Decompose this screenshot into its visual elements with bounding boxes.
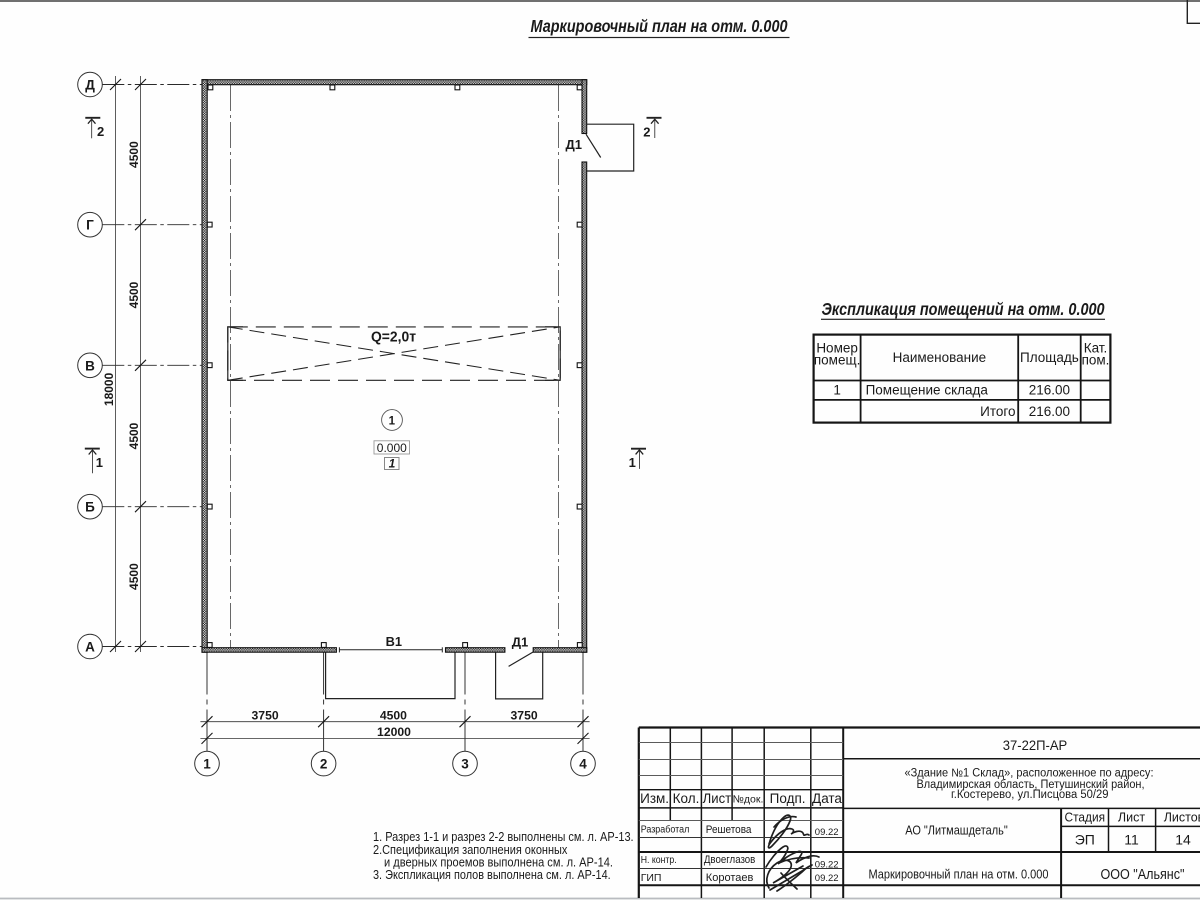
svg-text:Лист: Лист — [703, 791, 732, 806]
svg-text:3750: 3750 — [252, 708, 279, 722]
svg-text:14: 14 — [1175, 831, 1191, 847]
svg-text:4500: 4500 — [127, 422, 141, 449]
svg-text:Кол.: Кол. — [673, 791, 700, 806]
svg-text:Итого: Итого — [980, 404, 1015, 419]
svg-text:Д: Д — [85, 78, 95, 93]
svg-text:Подп.: Подп. — [770, 791, 806, 806]
svg-text:Маркировочный план на отм. 0.0: Маркировочный план на отм. 0.000 — [531, 16, 788, 36]
svg-text:ООО "Альянс": ООО "Альянс" — [1101, 866, 1185, 883]
svg-text:г.Костерево, ул.Писцова 50/29: г.Костерево, ул.Писцова 50/29 — [951, 789, 1109, 801]
svg-text:АО "Литмашдеталь": АО "Литмашдеталь" — [905, 824, 1008, 838]
svg-text:Д1: Д1 — [512, 634, 529, 649]
svg-text:09.22: 09.22 — [815, 827, 839, 838]
svg-text:4500: 4500 — [127, 281, 141, 308]
svg-text:3. Экспликация полов выполнена: 3. Экспликация полов выполнена см. л. АР… — [373, 867, 611, 882]
svg-text:4: 4 — [579, 757, 587, 772]
svg-text:3750: 3750 — [511, 708, 538, 722]
svg-text:А: А — [85, 640, 95, 655]
svg-text:1: 1 — [203, 757, 211, 772]
svg-text:Наименование: Наименование — [893, 350, 987, 365]
svg-text:4500: 4500 — [127, 563, 141, 590]
svg-text:4500: 4500 — [127, 141, 141, 168]
svg-text:№док.: №док. — [733, 794, 764, 806]
svg-text:Помещение склада: Помещение склада — [866, 383, 989, 398]
svg-text:3: 3 — [461, 757, 469, 772]
svg-text:«Здание №1 Склад», расположенн: «Здание №1 Склад», расположенное по адре… — [905, 767, 1154, 779]
svg-text:09.22: 09.22 — [815, 873, 839, 884]
svg-text:В1: В1 — [386, 634, 402, 649]
svg-text:Дата: Дата — [812, 791, 842, 806]
svg-text:Решетова: Решетова — [706, 824, 752, 836]
svg-text:37-22П-АР: 37-22П-АР — [1003, 738, 1068, 753]
svg-text:Стадия: Стадия — [1065, 811, 1106, 825]
svg-text:2: 2 — [97, 124, 104, 139]
svg-text:2: 2 — [643, 125, 650, 140]
svg-text:Изм.: Изм. — [640, 791, 669, 806]
svg-text:пом.: пом. — [1082, 352, 1110, 367]
svg-text:Q=2,0т: Q=2,0т — [371, 330, 416, 346]
svg-text:Лист: Лист — [1118, 811, 1145, 825]
svg-text:Г: Г — [86, 218, 94, 233]
svg-text:Н. контр.: Н. контр. — [641, 855, 677, 866]
svg-text:Разработал: Разработал — [641, 824, 690, 836]
svg-text:11: 11 — [1124, 831, 1139, 847]
svg-text:216.00: 216.00 — [1029, 383, 1070, 398]
svg-text:1: 1 — [629, 455, 636, 470]
svg-text:1: 1 — [389, 456, 396, 470]
svg-text:2: 2 — [320, 757, 328, 772]
svg-text:0.000: 0.000 — [377, 441, 407, 455]
svg-text:Коротаев: Коротаев — [706, 872, 754, 884]
svg-text:12000: 12000 — [377, 725, 411, 739]
svg-text:1: 1 — [96, 455, 103, 470]
svg-text:помещ.: помещ. — [814, 352, 860, 367]
svg-text:Двоеглазов: Двоеглазов — [704, 854, 756, 866]
svg-text:Б: Б — [85, 500, 95, 515]
svg-text:216.00: 216.00 — [1029, 404, 1070, 419]
svg-text:4500: 4500 — [380, 708, 407, 722]
svg-text:1: 1 — [833, 383, 841, 398]
svg-text:В: В — [85, 358, 95, 373]
svg-text:ЭП: ЭП — [1075, 831, 1095, 847]
svg-text:Экспликация помещений на отм.: Экспликация помещений на отм. 0.000 — [822, 299, 1105, 319]
svg-text:Площадь: Площадь — [1020, 350, 1079, 365]
svg-text:1: 1 — [389, 416, 396, 428]
svg-text:18000: 18000 — [102, 372, 116, 406]
svg-text:09.22: 09.22 — [815, 859, 839, 870]
svg-text:Маркировочный план на отм. 0.0: Маркировочный план на отм. 0.000 — [869, 868, 1049, 882]
svg-text:Листов: Листов — [1164, 811, 1200, 825]
svg-text:ГИП: ГИП — [641, 872, 662, 884]
svg-text:Д1: Д1 — [566, 137, 583, 152]
